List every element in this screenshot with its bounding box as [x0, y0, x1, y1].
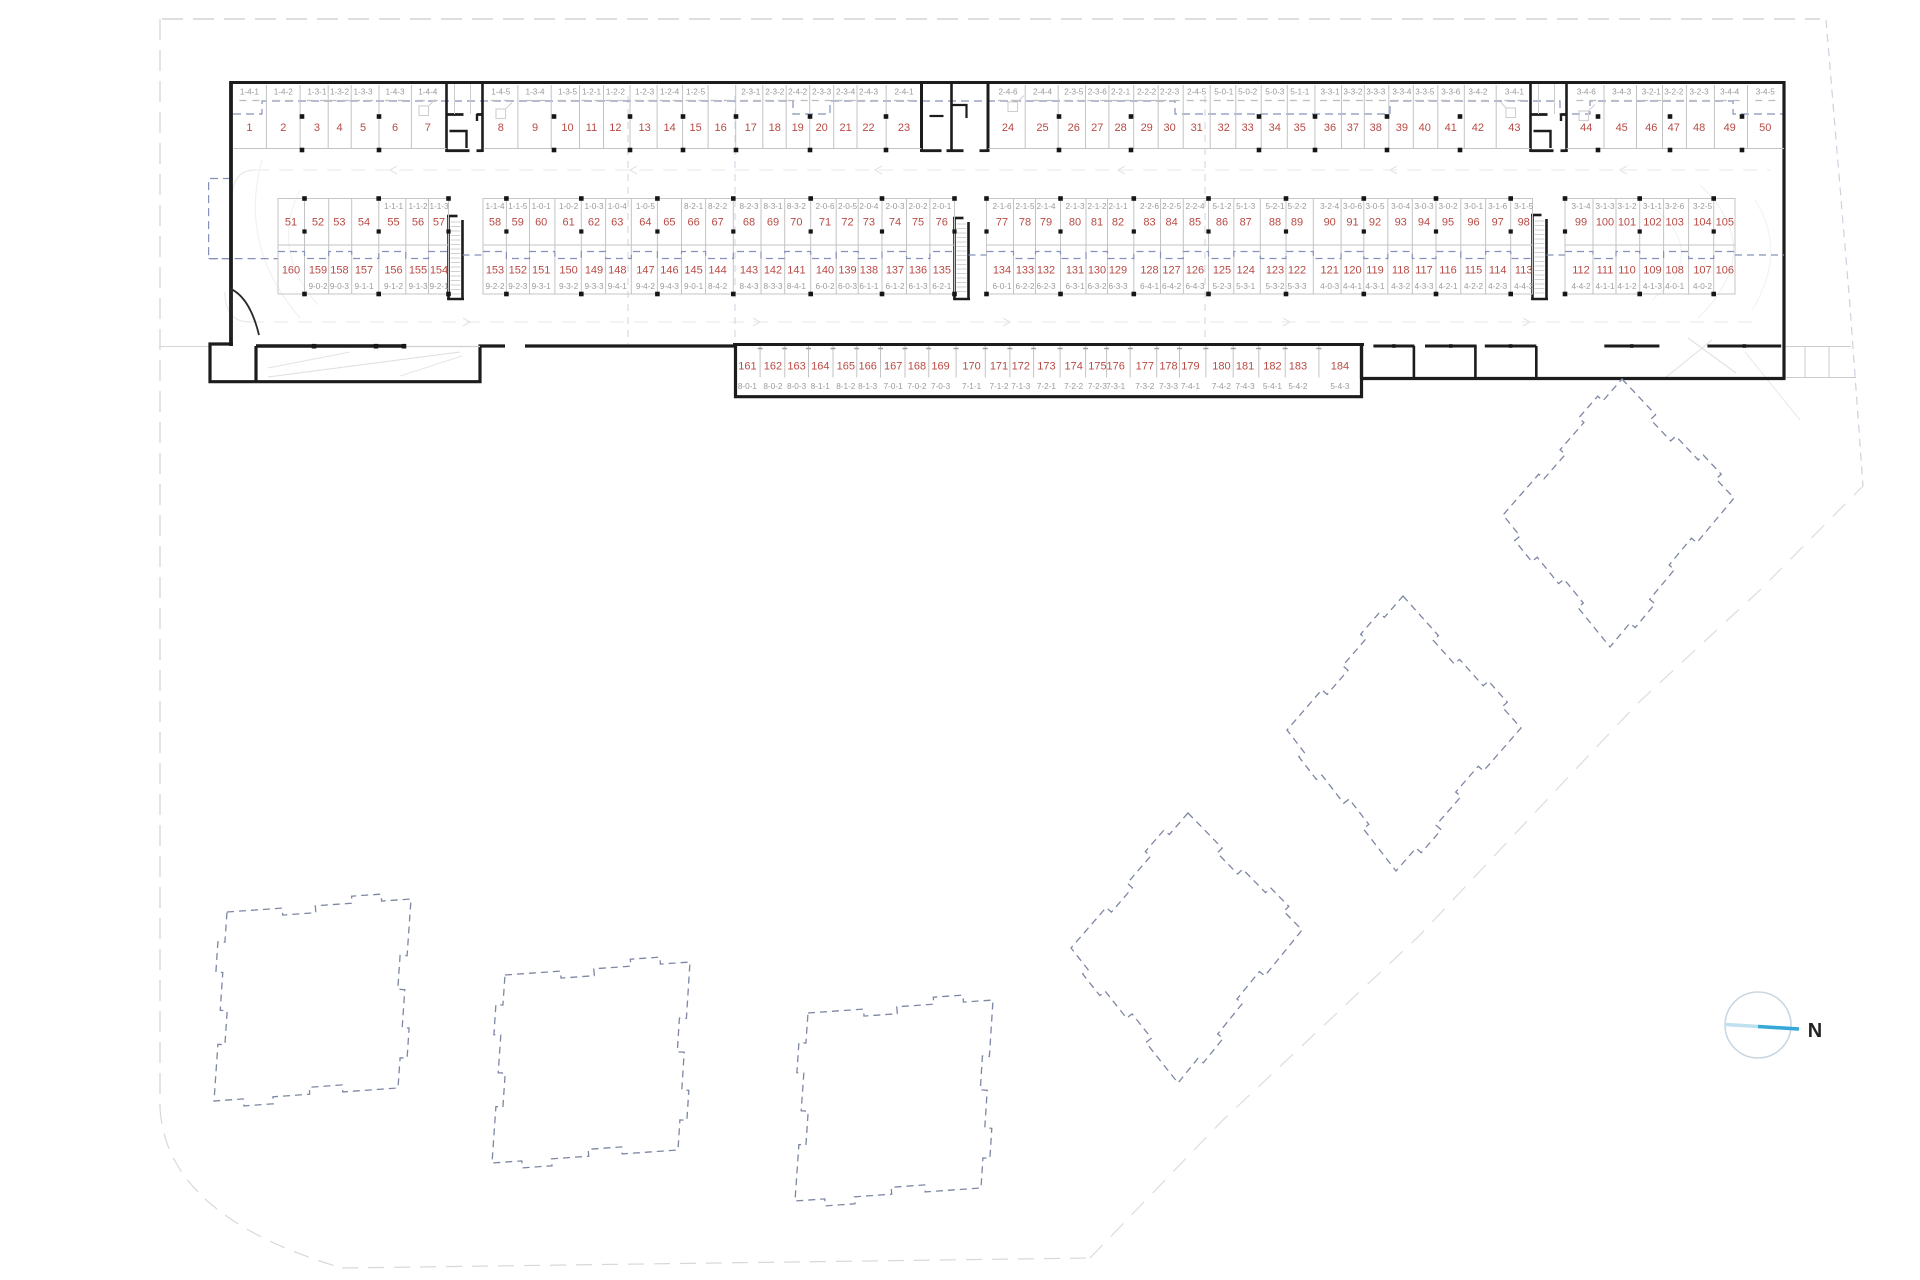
svg-text:146: 146 — [660, 265, 678, 277]
svg-text:1: 1 — [246, 122, 252, 134]
svg-text:72: 72 — [841, 217, 853, 229]
svg-text:99: 99 — [1575, 217, 1587, 229]
svg-text:6-4-3: 6-4-3 — [1185, 282, 1205, 291]
svg-text:142: 142 — [764, 265, 782, 277]
svg-text:41: 41 — [1445, 122, 1457, 134]
svg-text:4-0-1: 4-0-1 — [1665, 282, 1685, 291]
svg-text:7-1-3: 7-1-3 — [1011, 382, 1031, 391]
svg-text:6: 6 — [392, 122, 398, 134]
svg-text:118: 118 — [1392, 265, 1410, 277]
svg-text:133: 133 — [1016, 265, 1034, 277]
svg-text:4-3-2: 4-3-2 — [1391, 282, 1411, 291]
svg-text:49: 49 — [1724, 122, 1736, 134]
svg-text:4-2-1: 4-2-1 — [1438, 282, 1458, 291]
svg-text:1-1-2: 1-1-2 — [408, 202, 428, 211]
svg-text:69: 69 — [767, 217, 779, 229]
svg-text:1-0-4: 1-0-4 — [608, 202, 628, 211]
svg-text:129: 129 — [1109, 265, 1127, 277]
svg-text:37: 37 — [1347, 122, 1359, 134]
svg-text:56: 56 — [412, 217, 424, 229]
svg-text:86: 86 — [1216, 217, 1228, 229]
svg-text:52: 52 — [312, 217, 324, 229]
svg-text:6-1-1: 6-1-1 — [859, 282, 879, 291]
svg-text:2-3-3: 2-3-3 — [812, 88, 832, 97]
svg-text:9-2-3: 9-2-3 — [508, 282, 528, 291]
svg-text:31: 31 — [1191, 122, 1203, 134]
svg-text:77: 77 — [996, 217, 1008, 229]
svg-text:8-0-2: 8-0-2 — [763, 382, 783, 391]
svg-text:106: 106 — [1716, 265, 1734, 277]
svg-text:1-1-5: 1-1-5 — [508, 202, 528, 211]
svg-text:2-1-6: 2-1-6 — [992, 202, 1012, 211]
svg-text:61: 61 — [562, 217, 574, 229]
svg-text:119: 119 — [1366, 265, 1384, 277]
svg-text:1-2-2: 1-2-2 — [606, 88, 626, 97]
svg-text:2-0-5: 2-0-5 — [838, 202, 858, 211]
svg-text:9-3-1: 9-3-1 — [532, 282, 552, 291]
svg-text:182: 182 — [1263, 361, 1281, 373]
svg-text:7-1-2: 7-1-2 — [989, 382, 1009, 391]
svg-text:2-4-2: 2-4-2 — [788, 88, 808, 97]
svg-text:87: 87 — [1240, 217, 1252, 229]
svg-text:1-4-5: 1-4-5 — [491, 88, 511, 97]
svg-text:171: 171 — [990, 361, 1008, 373]
svg-text:65: 65 — [663, 217, 675, 229]
svg-text:92: 92 — [1369, 217, 1381, 229]
svg-text:9-4-1: 9-4-1 — [608, 282, 628, 291]
svg-text:4-1-2: 4-1-2 — [1617, 282, 1637, 291]
svg-text:115: 115 — [1465, 265, 1483, 277]
svg-text:159: 159 — [309, 265, 327, 277]
svg-text:19: 19 — [792, 122, 804, 134]
svg-text:120: 120 — [1343, 265, 1361, 277]
svg-text:3-1-2: 3-1-2 — [1617, 202, 1637, 211]
svg-text:7-3-1: 7-3-1 — [1106, 382, 1126, 391]
svg-text:10: 10 — [561, 122, 573, 134]
svg-text:3-1-3: 3-1-3 — [1595, 202, 1615, 211]
svg-text:7-4-2: 7-4-2 — [1212, 382, 1232, 391]
svg-text:62: 62 — [588, 217, 600, 229]
svg-text:45: 45 — [1616, 122, 1628, 134]
svg-text:5-2-3: 5-2-3 — [1212, 282, 1232, 291]
svg-text:143: 143 — [740, 265, 758, 277]
svg-text:4-1-1: 4-1-1 — [1595, 282, 1615, 291]
svg-text:1-0-3: 1-0-3 — [584, 202, 604, 211]
svg-text:7-0-3: 7-0-3 — [931, 382, 951, 391]
svg-text:9: 9 — [532, 122, 538, 134]
svg-text:40: 40 — [1419, 122, 1431, 134]
svg-text:173: 173 — [1037, 361, 1055, 373]
svg-text:158: 158 — [330, 265, 348, 277]
svg-text:59: 59 — [512, 217, 524, 229]
svg-text:145: 145 — [684, 265, 702, 277]
svg-text:27: 27 — [1091, 122, 1103, 134]
svg-text:3-1-5: 3-1-5 — [1514, 202, 1534, 211]
svg-text:39: 39 — [1396, 122, 1408, 134]
svg-text:1-1-3: 1-1-3 — [429, 202, 449, 211]
svg-text:6-3-3: 6-3-3 — [1108, 282, 1128, 291]
svg-text:38: 38 — [1370, 122, 1382, 134]
svg-text:174: 174 — [1065, 361, 1083, 373]
svg-text:1-4-4: 1-4-4 — [418, 88, 438, 97]
svg-text:103: 103 — [1666, 217, 1684, 229]
svg-text:160: 160 — [282, 265, 300, 277]
svg-text:5-3-1: 5-3-1 — [1236, 282, 1256, 291]
svg-text:3: 3 — [314, 122, 320, 134]
svg-text:6-1-3: 6-1-3 — [908, 282, 928, 291]
svg-text:N: N — [1808, 1020, 1822, 1042]
svg-text:2-1-5: 2-1-5 — [1015, 202, 1035, 211]
svg-text:6-1-2: 6-1-2 — [885, 282, 905, 291]
svg-text:8-4-3: 8-4-3 — [739, 282, 759, 291]
svg-text:3-3-3: 3-3-3 — [1366, 88, 1386, 97]
svg-text:2-1-3: 2-1-3 — [1065, 202, 1085, 211]
svg-text:71: 71 — [819, 217, 831, 229]
svg-text:70: 70 — [790, 217, 802, 229]
svg-text:9-4-2: 9-4-2 — [636, 282, 656, 291]
svg-text:2-3-6: 2-3-6 — [1088, 88, 1108, 97]
svg-text:2-2-3: 2-2-3 — [1160, 88, 1180, 97]
svg-text:51: 51 — [285, 217, 297, 229]
svg-text:150: 150 — [559, 265, 577, 277]
svg-text:134: 134 — [993, 265, 1011, 277]
svg-text:82: 82 — [1112, 217, 1124, 229]
svg-text:1-0-2: 1-0-2 — [559, 202, 579, 211]
svg-text:33: 33 — [1242, 122, 1254, 134]
svg-text:2-4-3: 2-4-3 — [859, 88, 879, 97]
svg-text:78: 78 — [1019, 217, 1031, 229]
svg-text:68: 68 — [743, 217, 755, 229]
svg-text:176: 176 — [1107, 361, 1125, 373]
svg-text:5-1-2: 5-1-2 — [1212, 202, 1232, 211]
svg-text:44: 44 — [1580, 122, 1592, 134]
svg-text:1-2-4: 1-2-4 — [660, 88, 680, 97]
svg-text:1-0-1: 1-0-1 — [532, 202, 552, 211]
svg-text:2-0-2: 2-0-2 — [908, 202, 928, 211]
svg-text:95: 95 — [1442, 217, 1454, 229]
svg-text:132: 132 — [1037, 265, 1055, 277]
svg-text:2-1-1: 2-1-1 — [1108, 202, 1128, 211]
svg-text:8-2-2: 8-2-2 — [708, 202, 728, 211]
svg-text:180: 180 — [1212, 361, 1230, 373]
svg-text:148: 148 — [608, 265, 626, 277]
svg-text:114: 114 — [1489, 265, 1507, 277]
svg-text:4-3-3: 4-3-3 — [1414, 282, 1434, 291]
svg-text:9-2-2: 9-2-2 — [485, 282, 505, 291]
svg-text:7-4-1: 7-4-1 — [1181, 382, 1201, 391]
svg-text:5-0-2: 5-0-2 — [1238, 88, 1258, 97]
svg-text:1-3-2: 1-3-2 — [330, 88, 350, 97]
svg-text:162: 162 — [764, 361, 782, 373]
svg-text:47: 47 — [1668, 122, 1680, 134]
svg-text:127: 127 — [1162, 265, 1180, 277]
svg-text:125: 125 — [1213, 265, 1231, 277]
svg-text:4-0-3: 4-0-3 — [1320, 282, 1340, 291]
svg-text:2-1-4: 2-1-4 — [1036, 202, 1056, 211]
svg-text:152: 152 — [509, 265, 527, 277]
svg-text:2-4-5: 2-4-5 — [1187, 88, 1207, 97]
svg-text:16: 16 — [714, 122, 726, 134]
svg-text:8-1-1: 8-1-1 — [811, 382, 831, 391]
svg-text:7-0-1: 7-0-1 — [884, 382, 904, 391]
svg-text:4-2-2: 4-2-2 — [1464, 282, 1484, 291]
svg-text:136: 136 — [909, 265, 927, 277]
svg-text:3-3-1: 3-3-1 — [1320, 88, 1340, 97]
svg-text:109: 109 — [1643, 265, 1661, 277]
svg-text:3-4-5: 3-4-5 — [1756, 88, 1776, 97]
svg-text:2-2-5: 2-2-5 — [1162, 202, 1182, 211]
svg-text:9-0-2: 9-0-2 — [308, 282, 328, 291]
svg-text:5-1-3: 5-1-3 — [1236, 202, 1256, 211]
svg-text:140: 140 — [816, 265, 834, 277]
svg-text:1-1-1: 1-1-1 — [384, 202, 404, 211]
svg-text:3-0-4: 3-0-4 — [1391, 202, 1411, 211]
svg-text:3-2-1: 3-2-1 — [1642, 88, 1662, 97]
svg-text:20: 20 — [816, 122, 828, 134]
svg-text:4-4-1: 4-4-1 — [1343, 282, 1363, 291]
svg-text:154: 154 — [430, 265, 448, 277]
svg-text:181: 181 — [1236, 361, 1254, 373]
svg-text:63: 63 — [611, 217, 623, 229]
svg-text:7-4-3: 7-4-3 — [1236, 382, 1256, 391]
svg-text:22: 22 — [862, 122, 874, 134]
svg-text:30: 30 — [1163, 122, 1175, 134]
svg-text:84: 84 — [1165, 217, 1177, 229]
svg-text:102: 102 — [1643, 217, 1661, 229]
svg-text:8-0-1: 8-0-1 — [738, 382, 758, 391]
svg-text:8-1-3: 8-1-3 — [858, 382, 878, 391]
svg-text:157: 157 — [355, 265, 373, 277]
svg-text:1-4-2: 1-4-2 — [274, 88, 294, 97]
svg-text:32: 32 — [1218, 122, 1230, 134]
svg-text:153: 153 — [486, 265, 504, 277]
svg-text:64: 64 — [639, 217, 651, 229]
svg-text:6-3-2: 6-3-2 — [1087, 282, 1107, 291]
svg-text:8-4-2: 8-4-2 — [708, 282, 728, 291]
svg-text:131: 131 — [1066, 265, 1084, 277]
svg-text:9-3-3: 9-3-3 — [584, 282, 604, 291]
svg-text:66: 66 — [687, 217, 699, 229]
svg-text:1-2-5: 1-2-5 — [686, 88, 706, 97]
svg-text:3-3-2: 3-3-2 — [1343, 88, 1363, 97]
svg-text:5-1-1: 5-1-1 — [1290, 88, 1310, 97]
svg-text:2-4-4: 2-4-4 — [1033, 88, 1053, 97]
svg-text:105: 105 — [1716, 217, 1734, 229]
svg-text:4-1-3: 4-1-3 — [1643, 282, 1663, 291]
svg-text:83: 83 — [1143, 217, 1155, 229]
svg-text:5-4-1: 5-4-1 — [1263, 382, 1283, 391]
svg-text:178: 178 — [1159, 361, 1177, 373]
svg-text:130: 130 — [1088, 265, 1106, 277]
svg-text:17: 17 — [745, 122, 757, 134]
svg-text:2-1-2: 2-1-2 — [1087, 202, 1107, 211]
svg-text:126: 126 — [1186, 265, 1204, 277]
svg-text:1-4-1: 1-4-1 — [240, 88, 260, 97]
svg-text:7-2-1: 7-2-1 — [1037, 382, 1057, 391]
svg-text:7-2-2: 7-2-2 — [1064, 382, 1084, 391]
svg-text:3-4-1: 3-4-1 — [1505, 88, 1525, 97]
svg-text:8-3-1: 8-3-1 — [763, 202, 783, 211]
svg-text:1-0-5: 1-0-5 — [636, 202, 656, 211]
svg-text:8-0-3: 8-0-3 — [787, 382, 807, 391]
svg-text:166: 166 — [859, 361, 877, 373]
svg-text:3-2-4: 3-2-4 — [1320, 202, 1340, 211]
svg-text:9-4-3: 9-4-3 — [660, 282, 680, 291]
svg-text:3-4-4: 3-4-4 — [1720, 88, 1740, 97]
svg-text:5: 5 — [360, 122, 366, 134]
svg-text:94: 94 — [1418, 217, 1430, 229]
svg-text:34: 34 — [1269, 122, 1281, 134]
svg-text:175: 175 — [1088, 361, 1106, 373]
svg-text:179: 179 — [1181, 361, 1199, 373]
svg-text:5-0-3: 5-0-3 — [1265, 88, 1285, 97]
svg-text:67: 67 — [711, 217, 723, 229]
svg-text:100: 100 — [1596, 217, 1614, 229]
svg-text:1-4-3: 1-4-3 — [385, 88, 405, 97]
svg-text:13: 13 — [638, 122, 650, 134]
svg-text:1-3-3: 1-3-3 — [353, 88, 373, 97]
svg-text:14: 14 — [663, 122, 675, 134]
svg-text:121: 121 — [1321, 265, 1339, 277]
svg-text:165: 165 — [837, 361, 855, 373]
svg-text:3-1-4: 3-1-4 — [1571, 202, 1591, 211]
svg-text:12: 12 — [609, 122, 621, 134]
svg-text:11: 11 — [586, 122, 597, 134]
svg-text:113: 113 — [1515, 265, 1533, 277]
svg-text:2-0-6: 2-0-6 — [815, 202, 835, 211]
svg-text:7-3-2: 7-3-2 — [1135, 382, 1155, 391]
svg-text:3-4-2: 3-4-2 — [1468, 88, 1488, 97]
svg-text:163: 163 — [787, 361, 805, 373]
svg-text:2-2-6: 2-2-6 — [1140, 202, 1160, 211]
svg-text:2-2-1: 2-2-1 — [1111, 88, 1131, 97]
svg-text:9-1-2: 9-1-2 — [384, 282, 404, 291]
svg-text:2-4-1: 2-4-1 — [894, 88, 914, 97]
svg-text:5-3-2: 5-3-2 — [1265, 282, 1285, 291]
svg-text:111: 111 — [1597, 265, 1614, 277]
svg-text:54: 54 — [358, 217, 370, 229]
svg-text:3-1-1: 3-1-1 — [1643, 202, 1663, 211]
svg-text:4: 4 — [336, 122, 342, 134]
svg-text:3-3-5: 3-3-5 — [1415, 88, 1435, 97]
svg-text:7-1-1: 7-1-1 — [962, 382, 982, 391]
svg-text:3-3-4: 3-3-4 — [1392, 88, 1412, 97]
svg-text:7-3-3: 7-3-3 — [1159, 382, 1179, 391]
svg-text:8-2-1: 8-2-1 — [684, 202, 704, 211]
svg-text:137: 137 — [886, 265, 904, 277]
svg-text:4-4-2: 4-4-2 — [1571, 282, 1591, 291]
svg-text:2-4-6: 2-4-6 — [998, 88, 1018, 97]
svg-text:168: 168 — [908, 361, 926, 373]
svg-text:25: 25 — [1036, 122, 1048, 134]
svg-text:172: 172 — [1012, 361, 1030, 373]
svg-text:36: 36 — [1324, 122, 1336, 134]
svg-text:75: 75 — [912, 217, 924, 229]
svg-text:74: 74 — [889, 217, 901, 229]
svg-text:43: 43 — [1508, 122, 1520, 134]
svg-text:2-0-4: 2-0-4 — [859, 202, 879, 211]
svg-text:91: 91 — [1346, 217, 1358, 229]
svg-text:5-4-3: 5-4-3 — [1330, 382, 1350, 391]
svg-text:7-0-2: 7-0-2 — [907, 382, 927, 391]
svg-text:90: 90 — [1324, 217, 1336, 229]
svg-text:5-0-1: 5-0-1 — [1214, 88, 1234, 97]
svg-text:108: 108 — [1666, 265, 1684, 277]
svg-text:3-0-1: 3-0-1 — [1464, 202, 1484, 211]
svg-text:4-3-1: 4-3-1 — [1365, 282, 1385, 291]
svg-text:139: 139 — [838, 265, 856, 277]
svg-text:4-4-3: 4-4-3 — [1514, 282, 1534, 291]
svg-text:26: 26 — [1068, 122, 1080, 134]
svg-text:46: 46 — [1645, 122, 1657, 134]
svg-text:141: 141 — [787, 265, 805, 277]
svg-text:6-0-3: 6-0-3 — [838, 282, 858, 291]
svg-text:3-0-5: 3-0-5 — [1365, 202, 1385, 211]
svg-text:97: 97 — [1492, 217, 1504, 229]
svg-text:151: 151 — [532, 265, 550, 277]
svg-text:9-3-2: 9-3-2 — [559, 282, 579, 291]
svg-text:167: 167 — [884, 361, 902, 373]
svg-text:73: 73 — [863, 217, 875, 229]
svg-text:1-2-3: 1-2-3 — [635, 88, 655, 97]
svg-text:42: 42 — [1472, 122, 1484, 134]
svg-text:6-0-1: 6-0-1 — [992, 282, 1012, 291]
svg-text:58: 58 — [489, 217, 501, 229]
svg-text:2-3-2: 2-3-2 — [765, 88, 785, 97]
svg-text:50: 50 — [1759, 122, 1771, 134]
svg-text:96: 96 — [1467, 217, 1479, 229]
svg-text:2-3-5: 2-3-5 — [1064, 88, 1084, 97]
svg-text:81: 81 — [1091, 217, 1103, 229]
svg-text:5-2-2: 5-2-2 — [1287, 202, 1307, 211]
svg-text:1-1-4: 1-1-4 — [485, 202, 505, 211]
svg-text:88: 88 — [1269, 217, 1281, 229]
svg-text:7: 7 — [425, 122, 431, 134]
svg-text:3-0-6: 3-0-6 — [1343, 202, 1363, 211]
svg-text:8-4-1: 8-4-1 — [787, 282, 807, 291]
svg-text:3-0-3: 3-0-3 — [1414, 202, 1434, 211]
svg-text:128: 128 — [1140, 265, 1158, 277]
svg-text:8-2-3: 8-2-3 — [739, 202, 759, 211]
svg-text:29: 29 — [1141, 122, 1153, 134]
svg-text:8-1-2: 8-1-2 — [836, 382, 856, 391]
svg-text:9-0-3: 9-0-3 — [330, 282, 350, 291]
svg-text:98: 98 — [1518, 217, 1530, 229]
svg-text:9-1-3: 9-1-3 — [408, 282, 428, 291]
svg-text:3-2-3: 3-2-3 — [1690, 88, 1710, 97]
svg-text:8: 8 — [498, 122, 504, 134]
svg-text:161: 161 — [738, 361, 756, 373]
svg-text:1-3-5: 1-3-5 — [558, 88, 578, 97]
svg-text:9-0-1: 9-0-1 — [684, 282, 704, 291]
svg-text:112: 112 — [1572, 265, 1590, 277]
svg-text:76: 76 — [936, 217, 948, 229]
svg-text:3-4-6: 3-4-6 — [1577, 88, 1597, 97]
svg-text:2-3-1: 2-3-1 — [741, 88, 761, 97]
svg-text:6-4-1: 6-4-1 — [1140, 282, 1160, 291]
svg-text:23: 23 — [898, 122, 910, 134]
svg-text:55: 55 — [387, 217, 399, 229]
svg-text:6-2-1: 6-2-1 — [932, 282, 952, 291]
svg-text:53: 53 — [333, 217, 345, 229]
svg-text:1-3-1: 1-3-1 — [307, 88, 327, 97]
svg-text:149: 149 — [585, 265, 603, 277]
svg-text:5-4-2: 5-4-2 — [1288, 382, 1308, 391]
svg-text:89: 89 — [1291, 217, 1303, 229]
svg-text:155: 155 — [409, 265, 427, 277]
svg-text:110: 110 — [1618, 265, 1636, 277]
svg-text:21: 21 — [839, 122, 851, 134]
